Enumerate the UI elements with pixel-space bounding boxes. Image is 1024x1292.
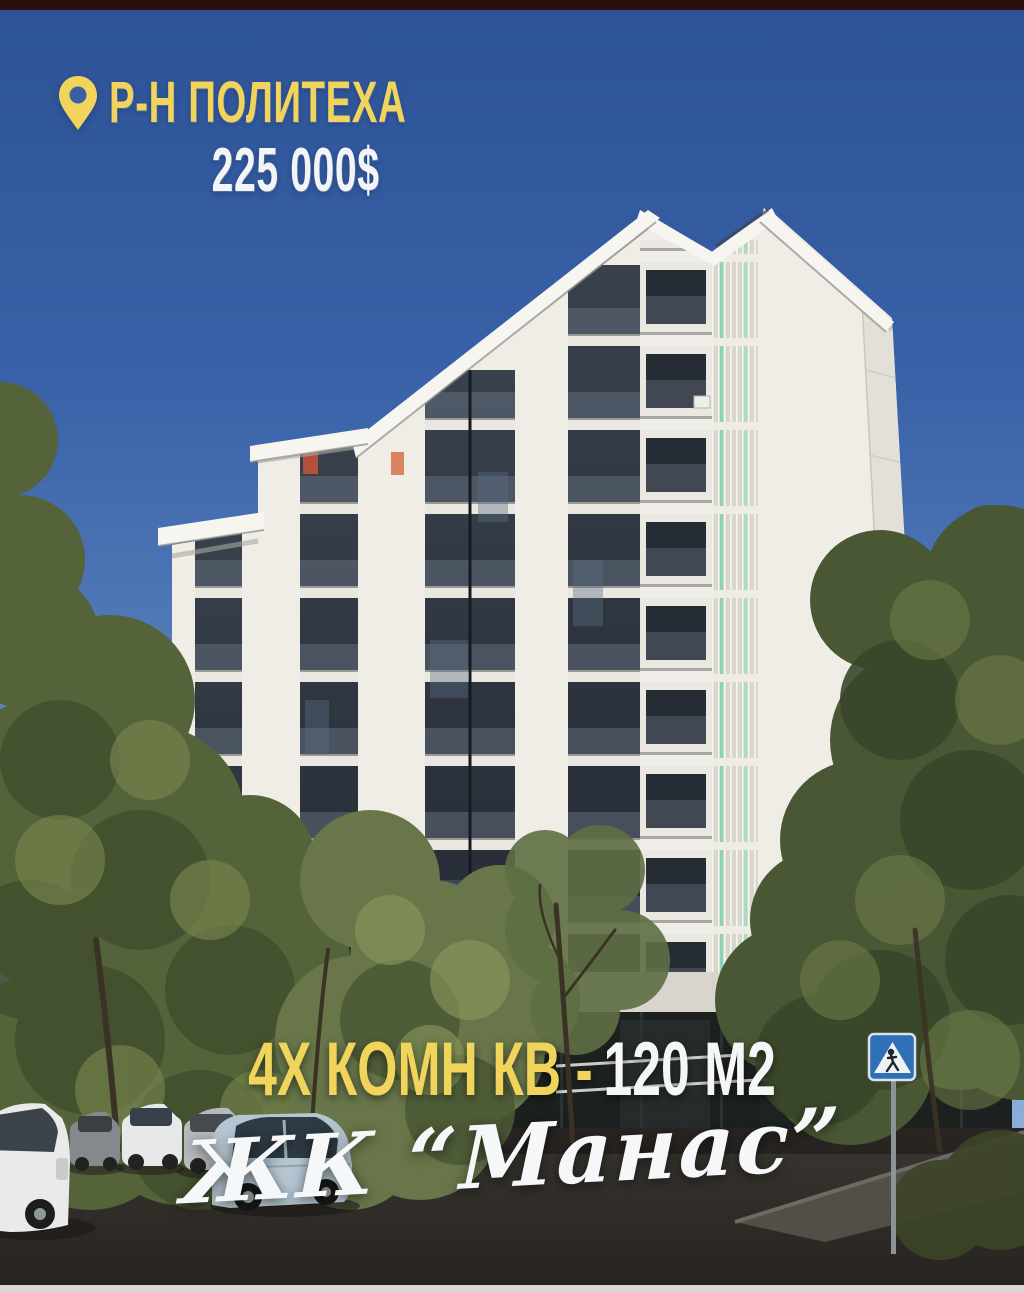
price-row: 225 000$ [58,140,380,202]
listing-spec-rooms: 4Х КОМН КВ - [248,1027,592,1112]
real-estate-ad: 4D [0,0,1024,1292]
bottom-strip [0,1285,1024,1292]
location-pin-icon [56,74,100,132]
location-label: Р-Н ПОЛИТЕХА [109,74,406,132]
listing-spec: 4Х КОМН КВ -120 М2 [0,1032,1024,1108]
location-row: Р-Н ПОЛИТЕХА [56,74,559,132]
price-label: 225 000$ [212,140,380,202]
complex-name-row: ЖК “Манас” [0,1108,1024,1207]
top-border-strip [0,0,1024,10]
complex-name: ЖК “Манас” [181,1091,843,1225]
